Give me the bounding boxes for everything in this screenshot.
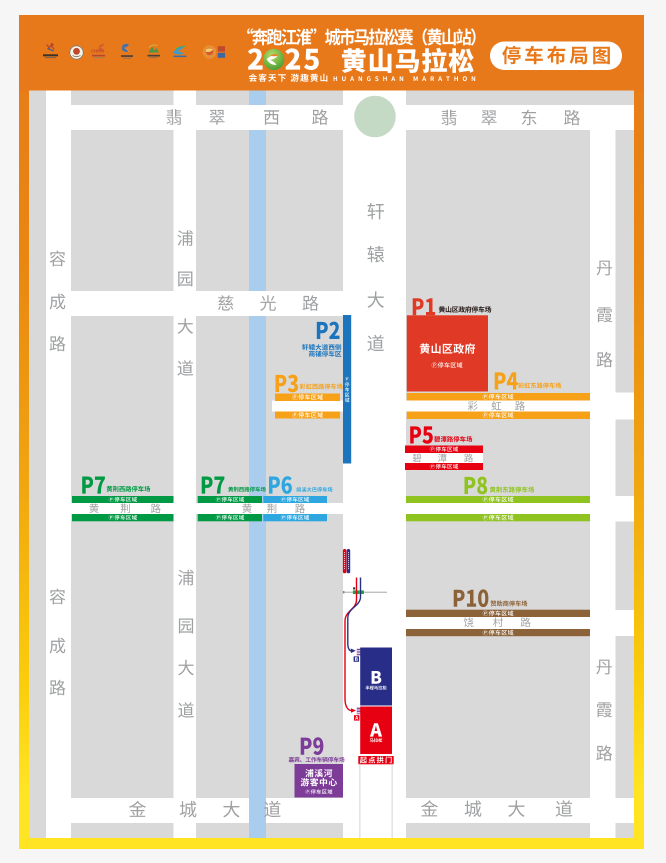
svg-text:CHINA: CHINA — [91, 49, 104, 54]
